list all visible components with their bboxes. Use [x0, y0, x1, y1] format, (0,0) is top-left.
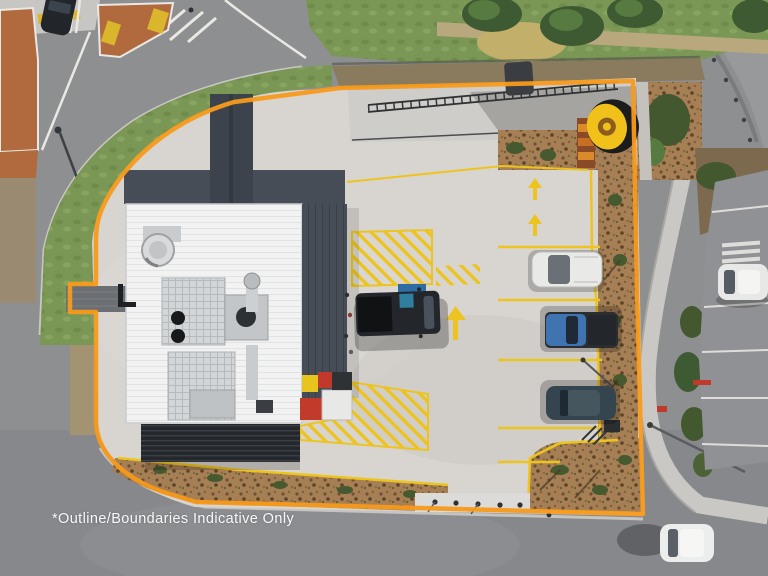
caption: *Outline/Boundaries Indicative Only: [52, 511, 294, 527]
ute-cargo-blue: [399, 293, 413, 307]
black-ute: [353, 286, 449, 351]
white-car-windshield: [724, 270, 735, 294]
van-windshield: [548, 255, 570, 284]
roof-dark-wing: [302, 204, 347, 398]
white-car-roof: [738, 270, 760, 294]
car-windshield: [560, 390, 568, 416]
blue-ute-tray: [588, 315, 616, 345]
hatched-zone-upper-ext: [436, 264, 480, 286]
duct-cowl: [244, 273, 260, 289]
light-pole-base: [647, 422, 653, 428]
car-windshield: [668, 529, 678, 557]
ute-tray: [357, 296, 392, 332]
shrub: [680, 306, 704, 338]
blue-ute: [540, 306, 622, 352]
tower-ridge: [229, 94, 233, 204]
traffic-island: [0, 8, 38, 152]
car-roof: [680, 529, 704, 557]
shrub: [674, 352, 702, 392]
carpark-pole-base: [581, 358, 586, 363]
pergola-canopy: [141, 424, 300, 462]
hvac-unit: [190, 390, 235, 418]
hatched-zone-upper: [352, 230, 432, 286]
blue-ute-windshield: [566, 316, 578, 344]
roof-hatch: [256, 400, 273, 413]
pergola-shadow: [145, 462, 300, 470]
dark-blue-car: [540, 380, 620, 424]
dirt-verge: [0, 178, 36, 303]
dark-trailer-top: [504, 61, 534, 96]
white-van: [528, 250, 604, 292]
car-roof: [566, 390, 600, 416]
traffic-island: [0, 150, 38, 180]
exhaust-fan: [171, 311, 185, 325]
aerial-photo-canvas: [0, 0, 768, 576]
pedestrian: [189, 8, 194, 13]
street-light-head: [55, 127, 62, 134]
ute-windshield: [423, 296, 434, 329]
dirt-verge: [70, 345, 97, 435]
duct: [246, 345, 258, 400]
aerial-photo: *Outline/Boundaries Indicative Only: [0, 0, 768, 576]
exhaust-fan: [171, 329, 185, 343]
